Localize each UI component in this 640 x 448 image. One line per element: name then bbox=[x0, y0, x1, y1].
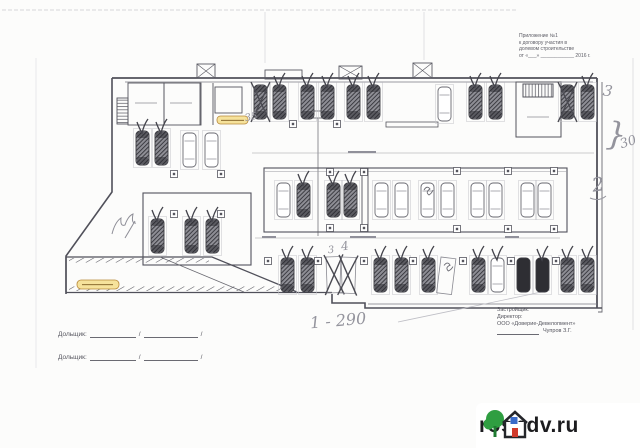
parking-stall bbox=[183, 207, 201, 256]
parking-stall bbox=[275, 181, 293, 220]
structural-column bbox=[361, 258, 368, 265]
parking-stall bbox=[487, 73, 505, 122]
car-icon bbox=[375, 183, 388, 217]
window-icon bbox=[511, 417, 518, 424]
developer-signatory: Чупров З.Г. bbox=[543, 328, 572, 335]
parking-stall bbox=[439, 181, 457, 220]
parking-stall bbox=[437, 257, 456, 295]
parking-stall bbox=[515, 256, 533, 295]
site-watermark: rosndv.ru bbox=[476, 403, 640, 448]
handwritten-scribble bbox=[112, 214, 136, 234]
parking-stall bbox=[536, 181, 554, 220]
structural-column bbox=[551, 226, 558, 233]
parking-stall bbox=[203, 131, 221, 170]
structural-column bbox=[218, 171, 225, 178]
slash: / bbox=[201, 354, 203, 361]
buyer-signature-row: Дольщик: / / bbox=[58, 331, 202, 338]
car-icon bbox=[489, 183, 502, 217]
parking-stall bbox=[373, 181, 391, 220]
structural-column bbox=[218, 211, 225, 218]
car-icon bbox=[438, 87, 451, 121]
signature-line bbox=[90, 332, 136, 338]
developer-company: ООО «Доверие-Девелопмент» bbox=[497, 321, 576, 328]
parking-stall bbox=[342, 171, 360, 220]
parking-stall bbox=[345, 73, 363, 122]
parking-stall bbox=[558, 82, 577, 122]
handwritten-annotation: 2 bbox=[591, 175, 606, 195]
tree-icon bbox=[484, 410, 505, 437]
structural-column bbox=[454, 226, 461, 233]
parking-stall bbox=[295, 171, 313, 220]
structural-column bbox=[265, 258, 272, 265]
signature-line bbox=[144, 332, 198, 338]
handwritten-annotation: 3 bbox=[328, 246, 335, 257]
house-icon bbox=[503, 412, 527, 437]
parking-stall bbox=[579, 246, 597, 295]
parking-stall bbox=[534, 246, 552, 295]
signature-line bbox=[90, 355, 136, 361]
parking-stall bbox=[489, 246, 507, 295]
structural-column bbox=[508, 258, 515, 265]
watermark-logo bbox=[476, 403, 534, 448]
ramp-hatch-top bbox=[69, 258, 209, 263]
slash: / bbox=[201, 331, 203, 338]
handwritten-annotation: 4 bbox=[340, 240, 349, 253]
stair-exits bbox=[197, 63, 432, 79]
structural-column bbox=[171, 211, 178, 218]
car-icon bbox=[441, 183, 454, 217]
parking-stall bbox=[279, 246, 297, 295]
structural-column bbox=[454, 168, 461, 175]
developer-title-label: Директор: bbox=[497, 314, 576, 321]
stairs-hatch bbox=[117, 98, 128, 124]
car-icon bbox=[395, 183, 408, 217]
scanned-parking-plan-page: Приложение №1 к договору участия в долев… bbox=[0, 0, 640, 448]
structural-column bbox=[290, 121, 297, 128]
car-icon bbox=[471, 183, 484, 217]
car-icon bbox=[421, 183, 434, 217]
structural-column bbox=[171, 171, 178, 178]
parking-stall bbox=[559, 246, 577, 295]
parking-stall bbox=[149, 207, 167, 256]
parking-stall bbox=[271, 73, 289, 122]
floor-plan-drawing bbox=[0, 0, 640, 448]
developer-role-label: Застройщик: bbox=[497, 307, 576, 314]
structural-column bbox=[553, 258, 560, 265]
parking-stall bbox=[338, 255, 358, 296]
structural-column bbox=[334, 121, 341, 128]
appendix-line: Приложение №1 bbox=[519, 33, 611, 40]
buyer-signature-row: Дольщик: / / bbox=[58, 354, 202, 361]
parking-stall bbox=[467, 73, 485, 122]
slash: / bbox=[139, 331, 141, 338]
car-icon bbox=[277, 183, 290, 217]
structural-column bbox=[327, 225, 334, 232]
parking-stall bbox=[393, 246, 411, 295]
parking-stall bbox=[519, 181, 537, 220]
developer-signature-block: Застройщик: Директор: ООО «Доверие-Девел… bbox=[497, 307, 576, 335]
scribble-mark bbox=[443, 263, 453, 272]
parking-stall bbox=[299, 246, 317, 295]
door-icon bbox=[512, 428, 518, 437]
appendix-note: Приложение №1 к договору участия в долев… bbox=[519, 33, 611, 59]
signature-line bbox=[144, 355, 198, 361]
car-icon bbox=[183, 133, 196, 167]
car-icon bbox=[517, 258, 530, 292]
car-icon bbox=[538, 183, 551, 217]
structural-column bbox=[361, 169, 368, 176]
car-icon bbox=[491, 258, 504, 292]
slash: / bbox=[139, 354, 141, 361]
appendix-line: к договору участия в bbox=[519, 40, 611, 47]
structural-column bbox=[505, 226, 512, 233]
parking-stall bbox=[325, 171, 343, 220]
parking-stall bbox=[579, 73, 597, 122]
structural-column bbox=[327, 169, 334, 176]
structural-column bbox=[361, 225, 368, 232]
parking-stall bbox=[420, 246, 438, 295]
appendix-line: долевом строительстве bbox=[519, 46, 611, 53]
parking-stall bbox=[181, 131, 199, 170]
appendix-line: от «___» ____________ 2016 г. bbox=[519, 53, 611, 60]
car-icon bbox=[205, 133, 218, 167]
parking-stall bbox=[470, 246, 488, 295]
signature-line bbox=[497, 329, 539, 335]
parking-stall bbox=[365, 73, 383, 122]
structural-column bbox=[410, 258, 417, 265]
parking-stall bbox=[393, 181, 411, 220]
parking-stall bbox=[299, 73, 317, 122]
structural-column bbox=[315, 258, 322, 265]
parking-stall bbox=[436, 85, 454, 124]
parking-stall bbox=[419, 181, 437, 220]
parking-stall bbox=[469, 181, 487, 220]
structural-column bbox=[505, 168, 512, 175]
parking-stall bbox=[487, 181, 505, 220]
parking-stall bbox=[153, 119, 171, 168]
buyer-label: Дольщик: bbox=[58, 331, 87, 338]
structural-column bbox=[460, 258, 467, 265]
parking-stall bbox=[372, 246, 390, 295]
structural-column bbox=[551, 168, 558, 175]
car-icon bbox=[521, 183, 534, 217]
car-icon bbox=[536, 258, 549, 292]
buyer-label: Дольщик: bbox=[58, 354, 87, 361]
parking-stall bbox=[319, 73, 337, 122]
parking-stall bbox=[134, 119, 152, 168]
